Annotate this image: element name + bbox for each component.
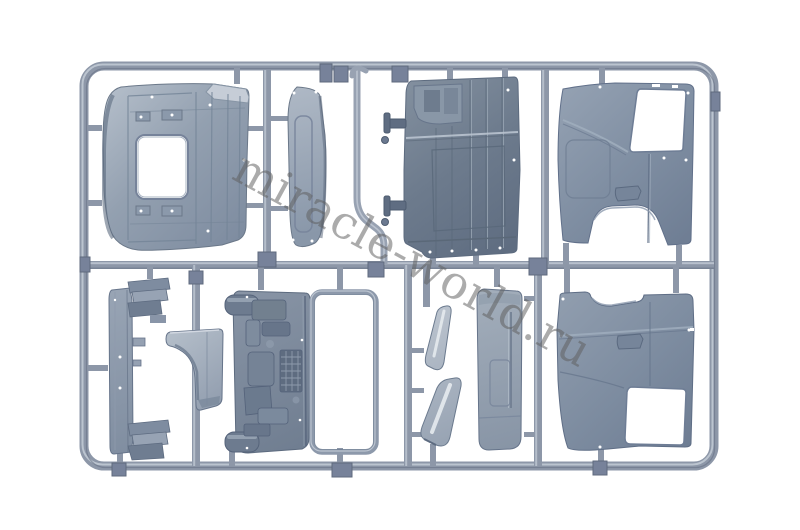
side-right-window-opening [630,89,686,152]
sprue-photo: miracle-world.ru [0,0,800,530]
side-left-handle-recess [617,334,643,349]
photo-stage: miracle-world.ru [0,0,800,530]
part-cab-roof-panel [103,84,249,251]
floor-vent-grille [281,351,301,391]
side-right-handle-recess [615,186,641,201]
side-left-window-opening [625,387,686,445]
part-cab-floor-assembly [225,291,311,453]
roof-sunroof-opening [136,135,188,199]
